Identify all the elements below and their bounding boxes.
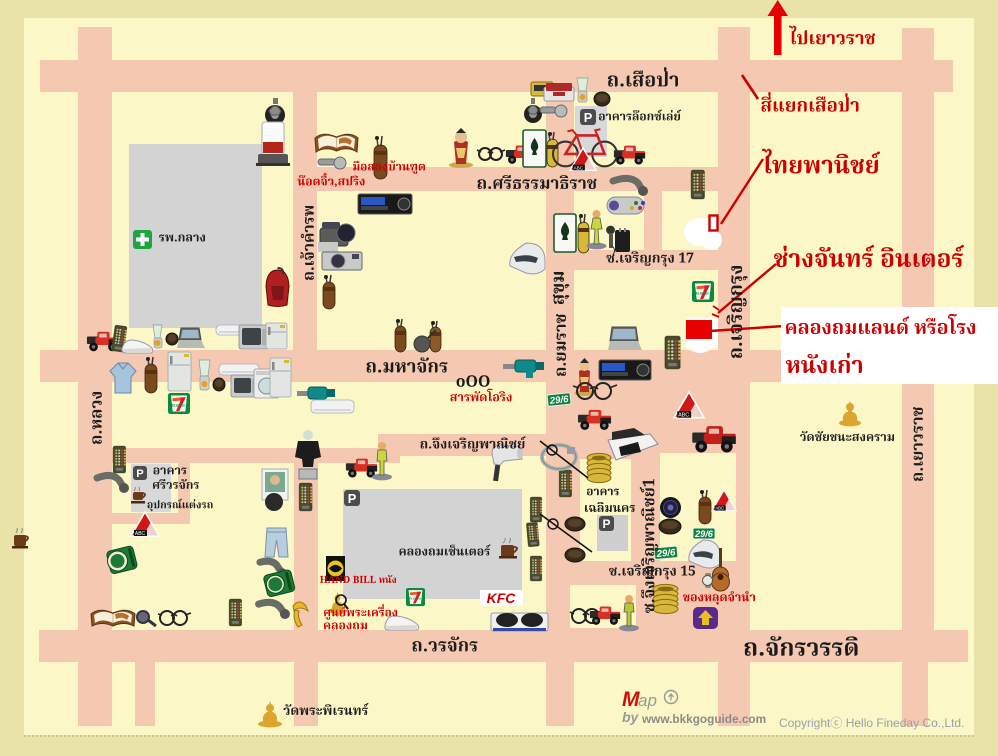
svg-text:KFC: KFC	[487, 590, 517, 606]
svg-text:ELEVEn: ELEVEn	[409, 597, 421, 601]
svg-text:by: by	[622, 709, 640, 725]
svg-text:Copyrightⓒ Hello Fineday Co.,L: Copyrightⓒ Hello Fineday Co.,Ltd.	[779, 716, 964, 730]
svg-text:29/6: 29/6	[694, 529, 714, 539]
svg-text:ap: ap	[638, 691, 657, 710]
svg-text:ABC: ABC	[135, 531, 146, 537]
svg-text:ABC: ABC	[678, 413, 689, 419]
svg-text:P: P	[602, 517, 610, 531]
svg-text:ABC: ABC	[715, 506, 724, 511]
svg-text:29/6: 29/6	[548, 394, 569, 407]
svg-text:www.bkkgoguide.com: www.bkkgoguide.com	[641, 712, 766, 726]
svg-text:ABC: ABC	[574, 165, 584, 170]
svg-text:P: P	[584, 110, 593, 125]
svg-text:29/6: 29/6	[655, 547, 676, 560]
svg-text:ELEVEn: ELEVEn	[172, 404, 187, 408]
svg-text:P: P	[136, 468, 144, 480]
svg-text:ELEVEn: ELEVEn	[696, 292, 711, 296]
svg-text:P: P	[348, 491, 357, 506]
